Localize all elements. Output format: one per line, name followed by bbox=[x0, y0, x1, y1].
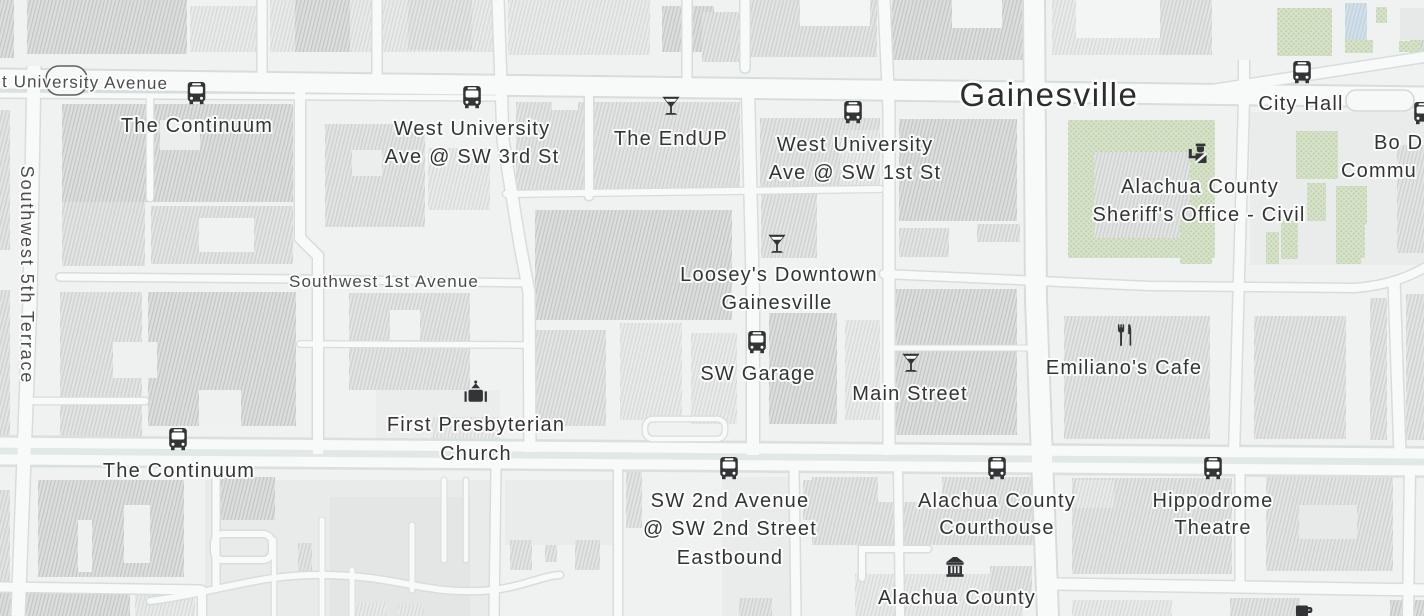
svg-text:Gainesville: Gainesville bbox=[721, 292, 832, 314]
svg-text:Alachua County: Alachua County bbox=[918, 490, 1076, 512]
svg-text:Southwest 1st Avenue: Southwest 1st Avenue bbox=[289, 272, 479, 291]
svg-text:Alachua County: Alachua County bbox=[878, 587, 1036, 609]
svg-text:t University Avenue: t University Avenue bbox=[2, 72, 168, 93]
svg-text:Commu: Commu bbox=[1341, 160, 1417, 182]
svg-text:Southwest 5th Terrace: Southwest 5th Terrace bbox=[17, 166, 37, 385]
svg-text:Theatre: Theatre bbox=[1174, 517, 1251, 539]
svg-text:SW 2nd Avenue: SW 2nd Avenue bbox=[651, 490, 810, 512]
svg-text:West University: West University bbox=[777, 134, 934, 156]
svg-text:Eastbound: Eastbound bbox=[677, 547, 783, 569]
svg-text:The EndUP: The EndUP bbox=[614, 128, 728, 150]
svg-text:SW Garage: SW Garage bbox=[700, 363, 815, 385]
svg-text:@ SW 2nd Street: @ SW 2nd Street bbox=[643, 518, 817, 540]
svg-text:The Continuum: The Continuum bbox=[103, 460, 255, 482]
svg-text:Loosey's Downtown: Loosey's Downtown bbox=[680, 264, 878, 286]
svg-text:West University: West University bbox=[394, 118, 551, 140]
svg-text:Ave @ SW 1st St: Ave @ SW 1st St bbox=[769, 162, 941, 184]
svg-text:Main Street: Main Street bbox=[852, 383, 967, 405]
svg-text:Bo D: Bo D bbox=[1374, 132, 1423, 154]
svg-text:Ave @ SW 3rd St: Ave @ SW 3rd St bbox=[385, 146, 560, 168]
svg-text:Hippodrome: Hippodrome bbox=[1153, 490, 1274, 512]
svg-text:Alachua County: Alachua County bbox=[1121, 176, 1279, 198]
svg-text:The Continuum: The Continuum bbox=[121, 115, 273, 137]
svg-text:Church: Church bbox=[440, 443, 512, 465]
svg-text:City Hall: City Hall bbox=[1258, 93, 1343, 115]
svg-text:Courthouse: Courthouse bbox=[939, 517, 1054, 539]
svg-text:Sheriff's Office - Civil: Sheriff's Office - Civil bbox=[1092, 204, 1305, 226]
svg-text:First Presbyterian: First Presbyterian bbox=[387, 414, 565, 436]
svg-text:Emiliano's Cafe: Emiliano's Cafe bbox=[1046, 357, 1202, 379]
svg-text:Gainesville: Gainesville bbox=[959, 76, 1138, 113]
